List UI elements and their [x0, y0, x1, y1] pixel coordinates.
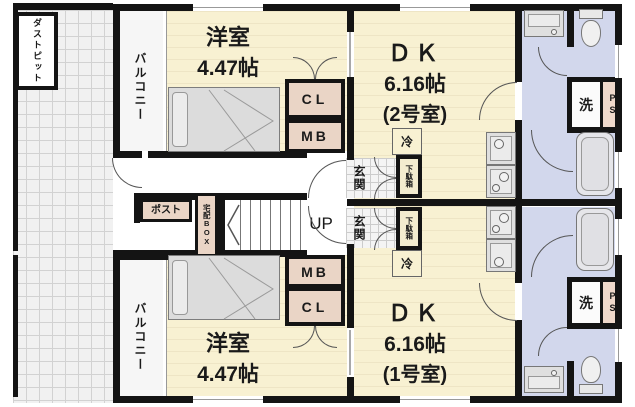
wall	[515, 206, 522, 283]
toilet-tank-unit1	[579, 384, 603, 394]
dk-size: 6.16帖	[352, 328, 478, 358]
closet-label: CL	[289, 291, 341, 322]
dk-size: 6.16帖	[352, 68, 478, 98]
dk-name: ＤＫ	[352, 294, 478, 328]
meter-box-unit1: MB	[285, 255, 345, 288]
window	[400, 4, 470, 11]
mail-post-label: ポスト	[143, 202, 189, 219]
bedroom-name: 洋室	[168, 20, 288, 52]
pipe-space-label: PS	[606, 282, 618, 323]
dk-label-unit1: ＤＫ 6.16帖 (1号室)	[352, 294, 478, 387]
toilet-unit2	[581, 20, 601, 47]
window	[193, 4, 263, 11]
toilet-tank-unit2	[579, 9, 603, 19]
wall	[567, 5, 574, 47]
window	[615, 329, 622, 362]
bed-unit1	[168, 255, 280, 320]
shoe-cabinet-label: 下駄箱	[400, 211, 418, 246]
wall	[113, 4, 120, 151]
closet-unit1: CL	[285, 287, 345, 326]
wall	[615, 4, 622, 45]
kitchen-sink-unit1	[486, 239, 516, 272]
bedroom-label-unit2: 洋室 4.47帖	[168, 20, 288, 82]
laundry-label-unit1: 洗	[572, 282, 600, 323]
bedroom-size: 4.47帖	[168, 52, 288, 82]
washbasin-unit1	[524, 366, 564, 393]
mail-post-box: ポスト	[140, 199, 192, 222]
wall	[218, 200, 225, 250]
window	[615, 152, 622, 188]
wall	[13, 3, 113, 10]
stairs	[240, 200, 304, 250]
wall	[567, 323, 615, 329]
wall	[515, 120, 522, 199]
wall	[347, 5, 354, 32]
floor-plan: ダストピット	[0, 0, 635, 407]
bathtub-unit1	[576, 208, 614, 271]
shoe-cabinet-label: 下駄箱	[400, 159, 418, 194]
wall	[615, 362, 622, 403]
bedroom-size: 4.47帖	[168, 358, 288, 388]
bedroom-name: 洋室	[168, 326, 288, 358]
entrance-label-unit1: 玄関	[350, 210, 368, 246]
kitchen-stove-unit2	[486, 165, 516, 198]
wall	[263, 4, 400, 11]
meter-box-label: MB	[289, 259, 341, 284]
balcony-window-unit2	[163, 11, 167, 151]
window	[615, 45, 622, 78]
shoe-cabinet-unit2: 下駄箱	[396, 155, 422, 198]
window	[193, 396, 263, 403]
meter-box-label: MB	[289, 123, 341, 149]
pipe-space-unit1: PS	[600, 282, 615, 323]
closet-label: CL	[289, 83, 341, 115]
dust-pit-label: ダストピット	[19, 16, 54, 86]
wall	[515, 320, 522, 396]
dk-label-unit2: ＤＫ 6.16帖 (2号室)	[352, 34, 478, 127]
wall	[263, 396, 400, 403]
balcony-label-unit1: バルコニー	[126, 278, 154, 396]
laundry-label-unit2: 洗	[572, 82, 600, 127]
window	[615, 219, 622, 255]
stairs-direction-arrow	[225, 203, 241, 247]
fridge-space-unit1: 冷	[392, 250, 422, 277]
entrance-door-arc-unit2	[308, 160, 346, 198]
wall	[113, 253, 120, 403]
pipe-space-unit2: PS	[600, 82, 615, 127]
wall	[347, 199, 622, 206]
wall	[470, 396, 622, 403]
dust-pit-box: ダストピット	[15, 12, 58, 90]
dk-name: ＤＫ	[352, 34, 478, 68]
balcony-window-unit1	[163, 260, 167, 396]
wall	[515, 5, 522, 82]
sliding-door-unit2	[349, 32, 351, 77]
sliding-door-unit1	[349, 330, 351, 375]
fridge-label: 冷	[393, 129, 421, 154]
corridor-door-arc	[112, 158, 142, 188]
wall	[113, 151, 142, 158]
balcony-label-unit2: バルコニー	[126, 28, 154, 146]
dk-room-number: (1号室)	[352, 358, 478, 387]
dk-room-number: (2号室)	[352, 98, 478, 127]
wall	[567, 361, 574, 403]
entrance-door-arc-unit1	[308, 206, 346, 244]
fridge-label: 冷	[393, 251, 421, 276]
wall	[113, 396, 193, 403]
closet-unit2: CL	[285, 79, 345, 119]
entrance-label-unit2: 玄関	[350, 160, 368, 196]
kitchen-stove-unit1	[486, 206, 516, 239]
toilet-unit1	[581, 356, 601, 383]
wall	[113, 4, 193, 11]
delivery-box: 宅配BOX	[195, 193, 218, 257]
bathtub-unit2	[576, 132, 614, 196]
pipe-space-label: PS	[606, 82, 618, 127]
fridge-space-unit2: 冷	[392, 128, 422, 155]
washbasin-unit2	[524, 10, 564, 37]
kitchen-sink-unit2	[486, 132, 516, 165]
window	[400, 396, 470, 403]
bed-unit2	[168, 87, 280, 152]
bedroom-label-unit1: 洋室 4.47帖	[168, 326, 288, 388]
delivery-box-label: 宅配BOX	[198, 196, 215, 254]
wall	[13, 255, 18, 397]
shoe-cabinet-unit1: 下駄箱	[396, 207, 422, 250]
meter-box-unit2: MB	[285, 119, 345, 153]
